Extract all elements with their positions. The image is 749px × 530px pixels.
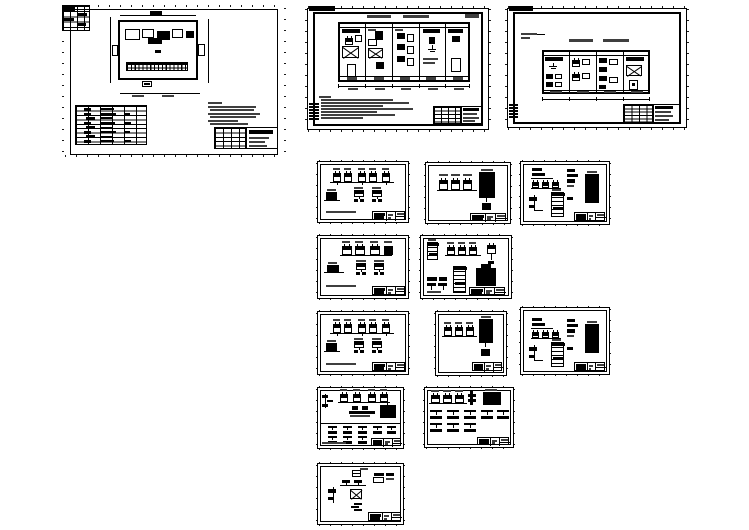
foot [380,272,384,275]
stem [487,412,488,415]
component-symbol [444,325,452,336]
text-smudge [466,322,473,324]
t-symbol [481,410,493,420]
line [542,97,543,101]
ink-mark [354,503,362,505]
text-smudge [587,321,597,323]
text-smudge [368,389,375,391]
foot [464,429,476,432]
border-ticks [489,9,491,129]
text-smudge [393,514,400,516]
ink-mark [655,106,673,109]
component-symbol [353,392,361,402]
text-smudge [521,33,537,35]
text-smudge [356,260,366,262]
dark-cell [553,207,564,210]
line [362,333,363,336]
text-smudge [388,214,393,216]
title-cell [576,217,586,220]
line [649,97,650,101]
text-smudge [132,95,144,97]
text-smudge [443,390,451,392]
text-smudge [486,365,491,367]
border-ticks [308,130,488,132]
ink-mark [100,127,112,129]
text-smudge [603,39,629,42]
text-smudge [353,389,360,391]
grid-table [214,127,246,149]
line [387,402,388,405]
text-smudge [428,239,436,241]
component-symbol [431,393,440,403]
title-block [368,512,401,521]
foot [360,350,364,353]
text-smudge [431,390,439,392]
text-smudge [210,116,256,118]
line [445,22,446,82]
component-symbol [572,72,580,81]
text-smudge [360,468,368,470]
ink-mark [126,62,188,65]
outline-box [555,74,562,79]
title-block [372,362,405,371]
ink-mark [328,497,334,500]
ink-mark [567,179,575,183]
line [437,190,477,191]
dark-cell [429,253,438,256]
text-smudge [403,15,429,18]
component-symbol [455,325,463,336]
divider [494,292,506,293]
ink-mark [86,117,95,120]
ink-mark [380,405,396,418]
component-symbol [447,245,455,255]
ink-mark [423,29,440,33]
ink-mark [427,277,437,281]
divider [484,363,485,372]
text-smudge [486,292,490,294]
outline-box [368,39,377,46]
outline-box [582,59,590,65]
text-smudge [486,368,489,370]
header-cell [552,343,565,346]
ink-mark [529,205,535,208]
symbol-body [572,77,580,81]
text-smudge [552,189,561,191]
ink-mark [376,62,384,69]
drawing-canvas [0,0,749,530]
text-smudge [388,368,391,370]
text-smudge [655,115,673,117]
text-smudge [388,292,391,294]
text-smudge [386,478,394,480]
line [340,485,366,486]
line [551,68,556,69]
title-block [469,287,505,295]
line [419,84,420,88]
line [623,50,624,94]
stem [332,438,333,440]
ink-mark [309,112,319,114]
text-smudge [385,443,388,445]
t-symbol [430,423,442,433]
text-smudge [321,111,377,113]
divider [499,442,510,443]
title-block [470,213,506,221]
ink-mark [144,83,150,85]
divider [391,517,402,518]
line [386,333,387,336]
ink-mark [532,318,542,321]
ink-mark [86,135,95,138]
ink-mark [599,76,607,81]
component-symbol [469,245,477,255]
t-symbol [373,426,382,435]
component-symbol [345,36,353,45]
text-smudge [382,168,389,170]
ink-mark [86,126,95,129]
outline-box [609,59,618,65]
text-smudge [455,322,462,324]
ink-mark [349,411,375,414]
text-smudge [444,322,451,324]
text-smudge [458,242,465,244]
text-smudge [249,137,269,139]
component-symbol [369,322,377,333]
text-smudge [374,77,384,80]
line [352,473,361,474]
schematic-sheet-11 [316,462,405,526]
ink-mark [532,168,542,171]
text-smudge [342,241,350,243]
outline-box [172,29,183,38]
outline-box [373,477,384,483]
outline-box [355,35,362,42]
title-block [574,212,605,221]
component-symbol [382,322,390,333]
ink-mark [354,509,362,511]
ink-mark [546,74,553,79]
line [531,178,553,179]
ink-mark [351,506,359,508]
line [338,84,339,88]
ink-mark [326,192,337,200]
text-smudge [326,285,356,287]
t-symbol [447,423,459,433]
text-smudge [375,88,385,90]
text-smudge [550,91,562,93]
text-smudge [597,364,604,366]
component-symbol [333,171,341,182]
divider [386,287,387,296]
stem [436,425,437,428]
border-ticks [284,8,286,154]
divider [383,439,384,447]
line [110,17,111,83]
ink-mark [545,57,563,61]
line [445,84,446,88]
ink-mark [309,103,319,105]
component-symbol [451,178,460,190]
ink-mark [448,29,463,33]
outline-box [125,29,140,40]
symbol-body [439,183,448,190]
text-smudge [327,189,336,191]
text-smudge [358,168,365,170]
text-smudge [208,106,256,108]
line [338,402,390,403]
outline-box [582,73,590,79]
text-smudge [344,319,351,321]
component-symbol [342,244,352,255]
stem [453,425,454,428]
text-smudge [501,439,508,441]
ink-mark [100,108,114,110]
elevation-sheet-b [505,6,689,130]
line [429,403,467,404]
component-symbol [542,180,549,188]
foot [378,199,382,202]
component-symbol [455,393,464,403]
ink-mark [567,324,578,327]
text-smudge [589,365,593,367]
text-smudge [451,174,460,176]
ink-mark [481,264,491,268]
divider [395,367,406,368]
divider [386,212,387,221]
stem [362,428,363,430]
text-smudge [367,15,391,18]
title-cell [479,441,489,444]
stem [503,412,504,415]
schematic-sheet-10 [423,386,515,449]
component-symbol [344,171,352,182]
foot [328,431,337,434]
ink-mark [509,113,518,115]
line [442,336,477,337]
component-symbol [552,180,559,188]
outline-box [142,29,154,38]
line [120,93,200,94]
foot [374,272,378,275]
stem [470,425,471,428]
title-cell [374,367,384,370]
schematic-sheet-07 [434,310,508,377]
ink-mark [468,394,476,397]
text-smudge [397,213,404,215]
ink-mark [124,113,130,115]
ink-mark [327,400,333,402]
ink-mark [397,33,405,39]
schematic-sheet-04 [316,234,410,300]
line [346,483,347,485]
ink-mark [309,118,319,120]
border-ticks [65,5,283,7]
ink-mark [599,67,607,72]
text-smudge [382,319,389,321]
line [534,210,543,211]
ink-mark [100,136,112,138]
ink-mark [567,347,573,350]
stem [362,438,363,440]
component-symbol-footed [374,263,384,276]
text-smudge [374,260,384,262]
line [386,182,387,185]
foot [430,416,442,419]
text-smudge [384,515,389,517]
text-smudge [388,217,391,219]
line [569,50,570,94]
symbol-body [572,63,580,67]
ink-mark [529,347,537,351]
t-symbol [497,410,509,420]
text-smudge [210,109,254,111]
line [324,272,344,273]
ink-mark [585,324,599,353]
ink-mark [397,56,405,62]
ink-mark [309,106,319,108]
component-symbol [333,322,341,333]
t-symbol [358,436,367,445]
ink-mark [599,58,607,63]
line [358,483,359,485]
line [485,343,486,347]
outline-box [609,77,618,83]
line [431,286,432,290]
ink-mark [326,343,337,351]
foot [343,431,352,434]
line [365,84,366,88]
title-block [371,438,401,446]
title-cell [472,217,483,220]
text-smudge [333,319,340,321]
ink-mark [626,57,644,61]
component-symbol [487,243,496,254]
stem [436,412,437,415]
text-smudge [577,91,589,93]
crossed-box [350,489,362,499]
ink-mark [599,85,606,89]
text-smudge [354,338,363,340]
ink-mark [64,7,75,11]
line [534,360,543,361]
ink-mark [546,82,553,87]
text-smudge [487,218,491,220]
title-cell [374,216,384,219]
line [549,66,557,67]
title-block [372,286,405,295]
ink-mark [84,108,91,111]
t-symbol [343,426,352,435]
ink-mark [64,18,74,21]
text-smudge [655,119,669,121]
stem [332,428,333,430]
foot [481,416,493,419]
component-symbol [542,330,549,338]
grid-table [75,105,147,145]
ink-mark [532,323,545,326]
stem [453,412,454,415]
t-symbol [328,426,337,435]
text-smudge [321,99,393,101]
ink-mark [124,131,130,133]
outline-box [198,44,205,56]
terminal-strip [551,192,564,217]
ink-mark [532,173,545,176]
ink-mark [328,489,336,493]
outline-box [112,45,118,56]
foot [378,350,382,353]
text-smudge [655,111,671,113]
foot [447,429,459,432]
crossed-box [342,46,359,58]
ink-mark [84,131,91,134]
line [120,15,196,16]
title-block [477,437,509,445]
text-smudge [453,77,463,80]
divider [495,218,507,219]
ink-mark [397,44,405,50]
ink-mark [186,31,194,38]
foot [464,416,476,419]
divider [493,367,503,368]
ink-mark [322,395,328,398]
text-smudge [328,262,337,264]
text-smudge [388,365,393,367]
text-smudge [427,291,441,293]
text-smudge [208,113,260,115]
dark-cell [455,282,466,285]
ink-mark [429,37,435,44]
crossed-box [626,65,642,76]
text-smudge [321,117,363,119]
t-symbol [387,426,396,435]
t-symbol [464,410,476,420]
line [537,34,545,35]
text-smudge [162,95,174,97]
line [542,55,650,56]
grid-table [433,106,461,124]
text-smudge [423,58,438,60]
text-smudge [495,364,501,366]
ink-mark [481,349,490,356]
ink-mark [567,197,573,200]
text-smudge [384,518,387,520]
divider [490,438,491,446]
header-cell [428,243,439,246]
component-symbol-footed [372,341,382,354]
schematic-sheet-01 [316,160,410,224]
divider [587,213,588,222]
ink-mark [384,246,393,255]
text-smudge [333,168,340,170]
schematic-sheet-05 [419,234,513,300]
divider [386,363,387,372]
text-smudge [321,102,409,104]
text-smudge [589,368,591,370]
text-smudge [354,187,363,189]
ink-mark [100,117,112,119]
text-smudge [426,77,436,80]
text-smudge [350,415,370,417]
text-smudge [463,113,477,115]
text-smudge [485,389,497,391]
divider [595,367,606,368]
grid-table [623,104,653,124]
foot [373,431,382,434]
ink-mark [386,473,394,476]
text-smudge [631,91,643,93]
